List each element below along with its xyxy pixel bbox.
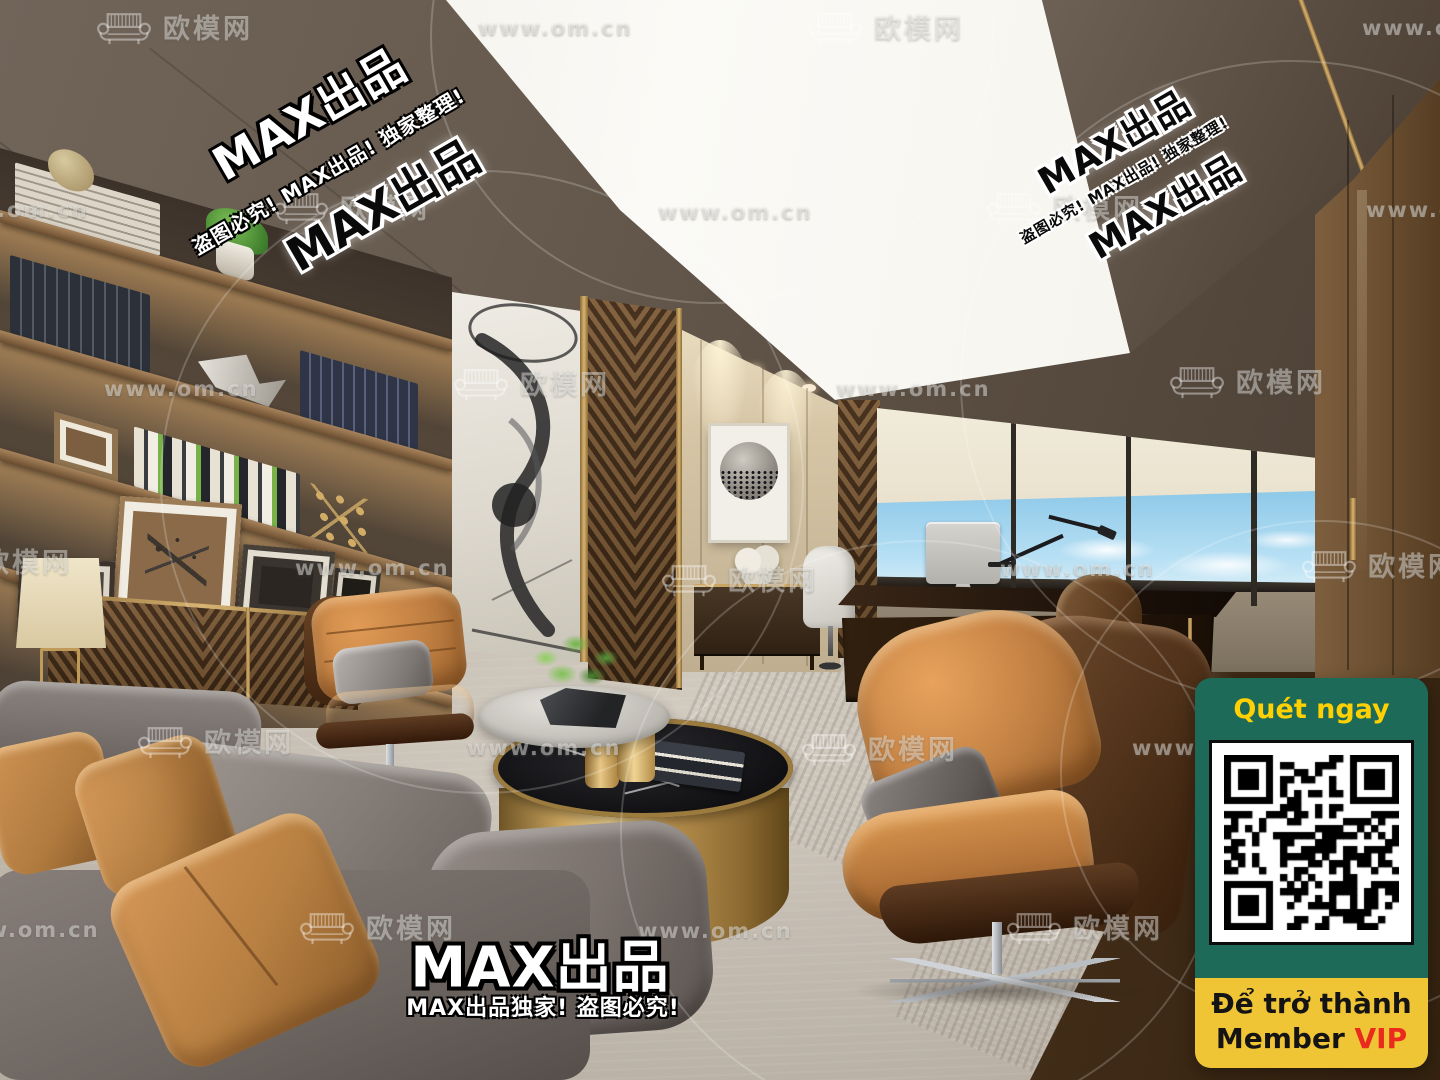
- sofa-gray: [0, 660, 720, 1080]
- desk-lamp: [986, 500, 1116, 570]
- wardrobe-seam: [1347, 120, 1349, 670]
- art-panel-brass-edge: [580, 296, 588, 662]
- wardrobe-seam: [1392, 95, 1394, 675]
- floor-lamp-shade: [16, 558, 106, 648]
- wardrobe-reflection: [1357, 190, 1367, 570]
- window-pier-wall: [1259, 420, 1319, 672]
- qr-code-box: [1209, 740, 1414, 945]
- wardrobe-handle: [1350, 498, 1356, 560]
- qr-footer-line1: Để trở thành: [1195, 986, 1428, 1021]
- column-brass-edge: [676, 308, 682, 688]
- white-sculpture: [733, 545, 783, 585]
- rendered-office-scene: 欧模网 www.om.cn 欧模网 www.om.cnwww.om.cn 欧模网: [0, 0, 1440, 1080]
- sideboard: [694, 584, 820, 656]
- qr-code: [1224, 755, 1399, 930]
- qr-panel-title: Quét ngay: [1195, 694, 1428, 725]
- vip-qr-panel[interactable]: Quét ngay Để trở thành Member VIP: [1195, 678, 1428, 1068]
- ink-art-marks: [144, 528, 210, 590]
- window-mullion: [1126, 408, 1131, 603]
- lounge-chair-right: [820, 606, 1210, 1006]
- qr-footer-line2: Member VIP: [1195, 1021, 1428, 1056]
- chair2-shadow: [850, 976, 1150, 1006]
- qr-panel-footer: Để trở thành Member VIP: [1195, 978, 1428, 1068]
- qr-vip-text: VIP: [1355, 1022, 1408, 1055]
- qr-member-text: Member: [1216, 1022, 1355, 1055]
